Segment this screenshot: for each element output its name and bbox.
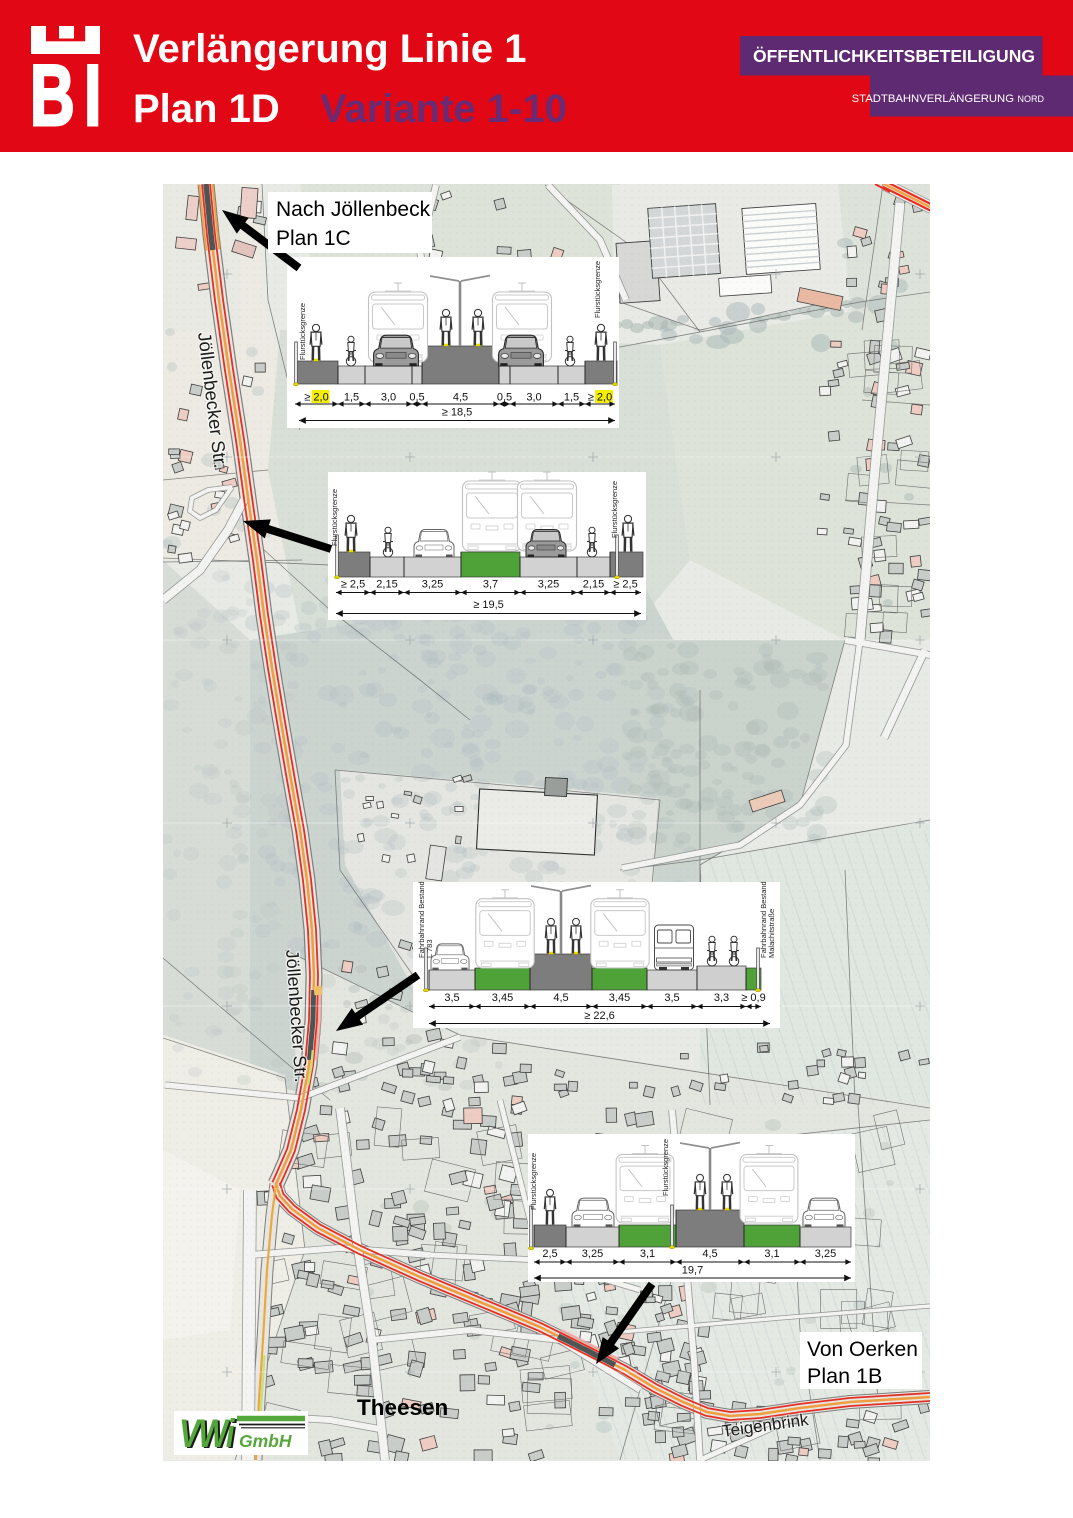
svg-text:NORD: NORD bbox=[1018, 94, 1045, 104]
svg-text:1,5: 1,5 bbox=[564, 392, 579, 404]
svg-text:Theesen: Theesen bbox=[357, 1395, 448, 1420]
svg-text:4,5: 4,5 bbox=[453, 392, 468, 404]
svg-text:3,5: 3,5 bbox=[664, 992, 679, 1004]
svg-text:Flurstücksgrenze: Flurstücksgrenze bbox=[330, 489, 339, 546]
svg-text:Flurstücksgrenze: Flurstücksgrenze bbox=[529, 1153, 538, 1210]
svg-text:Variante 1-10: Variante 1-10 bbox=[320, 87, 567, 131]
svg-text:2,5: 2,5 bbox=[542, 1248, 557, 1260]
svg-text:3,25: 3,25 bbox=[582, 1248, 603, 1260]
svg-text:≥ 0,9: ≥ 0,9 bbox=[741, 992, 765, 1004]
svg-text:Flurstücksgrenze: Flurstücksgrenze bbox=[610, 481, 619, 538]
svg-text:Von Oerken: Von Oerken bbox=[807, 1338, 918, 1361]
svg-text:GmbH: GmbH bbox=[239, 1431, 292, 1451]
svg-text:3,45: 3,45 bbox=[609, 992, 630, 1004]
svg-text:Verlängerung Linie 1: Verlängerung Linie 1 bbox=[133, 27, 526, 71]
svg-text:≥ 19,5: ≥ 19,5 bbox=[473, 599, 504, 611]
svg-text:Flurstücksgrenze: Flurstücksgrenze bbox=[661, 1139, 670, 1196]
svg-text:Flurstücksgrenze: Flurstücksgrenze bbox=[298, 303, 307, 360]
svg-text:3,7: 3,7 bbox=[483, 579, 498, 591]
svg-text:4,5: 4,5 bbox=[702, 1248, 717, 1260]
svg-text:Malachitstraße: Malachitstraße bbox=[767, 909, 776, 958]
svg-text:≥ 2,0: ≥ 2,0 bbox=[588, 392, 612, 404]
svg-text:3,1: 3,1 bbox=[764, 1248, 779, 1260]
svg-text:3,0: 3,0 bbox=[381, 392, 396, 404]
svg-text:STADTBAHNVERLÄNGERUNG: STADTBAHNVERLÄNGERUNG bbox=[852, 93, 1014, 105]
svg-text:2,15: 2,15 bbox=[583, 579, 604, 591]
svg-text:≥ 2,5: ≥ 2,5 bbox=[341, 579, 365, 591]
svg-text:L 783: L 783 bbox=[425, 940, 434, 959]
svg-text:BI: BI bbox=[30, 47, 111, 143]
svg-text:3,0: 3,0 bbox=[526, 392, 541, 404]
svg-text:≥ 22,6: ≥ 22,6 bbox=[584, 1010, 615, 1022]
svg-text:1,5: 1,5 bbox=[344, 392, 359, 404]
svg-text:3,25: 3,25 bbox=[815, 1248, 836, 1260]
svg-text:Plan 1C: Plan 1C bbox=[276, 227, 351, 250]
svg-text:≥ 2,0: ≥ 2,0 bbox=[304, 392, 328, 404]
svg-text:3,3: 3,3 bbox=[714, 992, 729, 1004]
svg-text:Plan 1B: Plan 1B bbox=[807, 1364, 882, 1388]
svg-text:ÖFFENTLICHKEITSBETEILIGUNG: ÖFFENTLICHKEITSBETEILIGUNG bbox=[753, 46, 1035, 66]
svg-text:3,25: 3,25 bbox=[538, 579, 559, 591]
svg-text:3,1: 3,1 bbox=[640, 1248, 655, 1260]
svg-text:≥ 18,5: ≥ 18,5 bbox=[442, 407, 473, 419]
svg-text:3,45: 3,45 bbox=[492, 992, 513, 1004]
svg-text:4,5: 4,5 bbox=[553, 992, 568, 1004]
svg-text:VWi: VWi bbox=[179, 1411, 235, 1456]
svg-text:2,15: 2,15 bbox=[376, 579, 397, 591]
svg-text:≥ 2,5: ≥ 2,5 bbox=[613, 579, 637, 591]
svg-text:Flurstücksgrenze: Flurstücksgrenze bbox=[593, 261, 602, 318]
svg-text:19,7: 19,7 bbox=[682, 1265, 703, 1277]
svg-text:3,5: 3,5 bbox=[444, 992, 459, 1004]
svg-text:Nach Jöllenbeck: Nach Jöllenbeck bbox=[276, 198, 431, 221]
svg-text:Plan 1D: Plan 1D bbox=[133, 87, 280, 131]
svg-text:3,25: 3,25 bbox=[422, 579, 443, 591]
